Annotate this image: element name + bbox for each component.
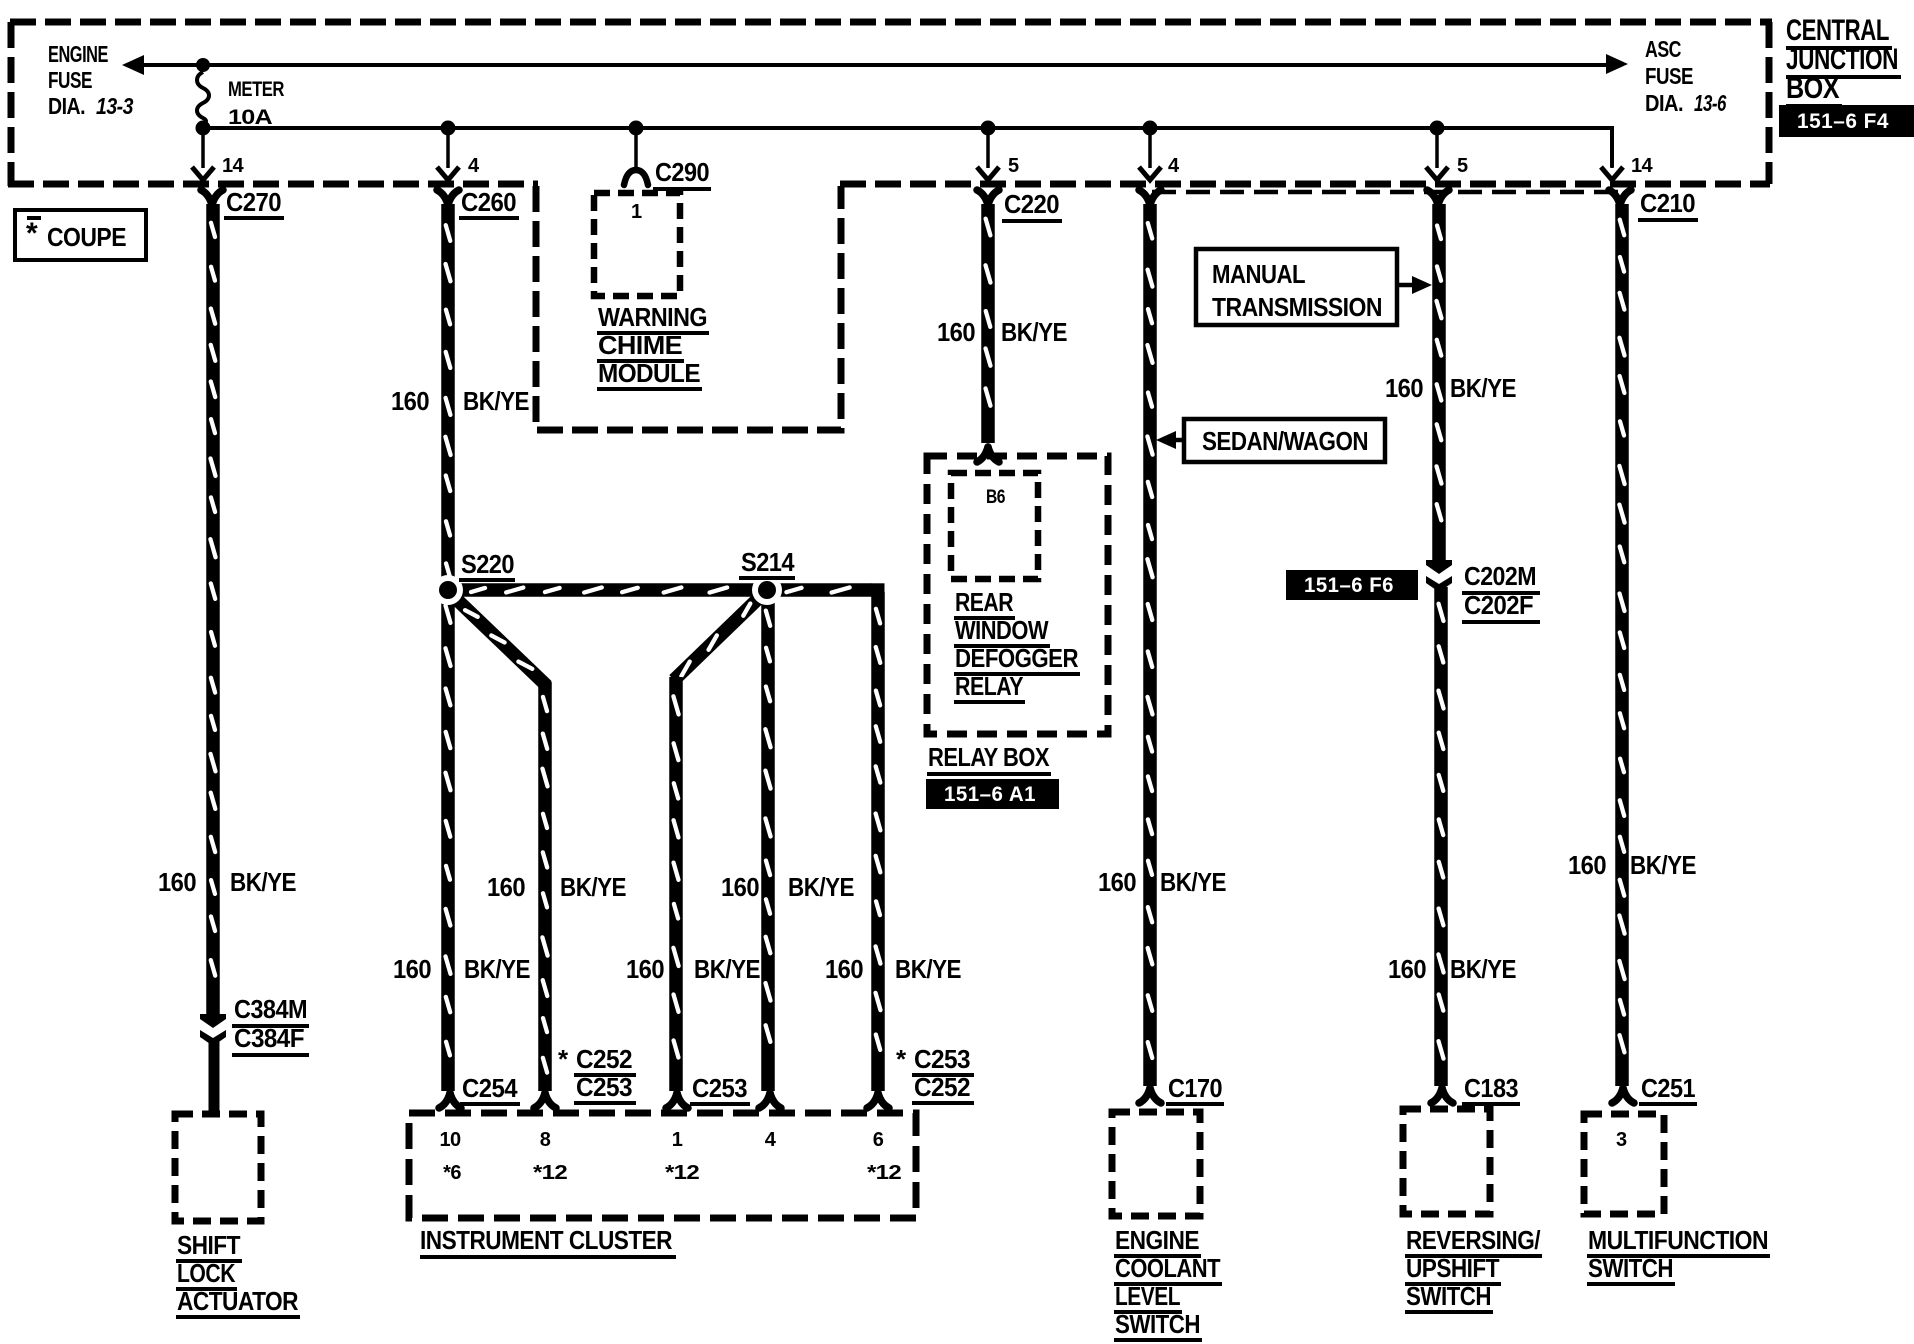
svg-text:FUSE: FUSE [48,67,92,93]
svg-text:SHIFT: SHIFT [177,1230,241,1260]
svg-text:SWITCH: SWITCH [1115,1309,1200,1339]
svg-text:160: 160 [1385,373,1423,403]
svg-text:*: * [558,1044,569,1074]
svg-text:C202F: C202F [1464,590,1533,620]
svg-text:DIA.: DIA. [1645,90,1683,116]
svg-text:10: 10 [439,1129,461,1151]
svg-text:COOLANT: COOLANT [1115,1253,1221,1283]
svg-text:C183: C183 [1464,1073,1518,1103]
svg-text:SWITCH: SWITCH [1406,1281,1491,1311]
svg-text:C253: C253 [692,1073,747,1103]
svg-text:160: 160 [393,954,431,984]
svg-text:C252: C252 [914,1072,970,1102]
svg-text:BK/YE: BK/YE [1001,317,1067,347]
svg-text:C384M: C384M [234,994,307,1024]
svg-text:5: 5 [1008,155,1019,177]
svg-text:ASC: ASC [1645,36,1681,62]
svg-text:BK/YE: BK/YE [464,954,530,984]
svg-text:1: 1 [672,1129,683,1151]
svg-text:1: 1 [631,201,642,223]
svg-text:6: 6 [873,1129,884,1151]
svg-text:5: 5 [1457,155,1468,177]
svg-text:160: 160 [721,872,759,902]
svg-text:RELAY: RELAY [955,671,1023,701]
svg-text:BK/YE: BK/YE [1450,373,1516,403]
svg-text:4: 4 [468,155,480,177]
svg-text:C170: C170 [1168,1073,1222,1103]
svg-text:WARNING: WARNING [598,302,707,332]
svg-text:DIA.: DIA. [48,93,85,119]
svg-text:METER: METER [228,78,284,101]
svg-text:BK/YE: BK/YE [230,867,296,897]
svg-text:160: 160 [1388,954,1426,984]
svg-text:8: 8 [540,1129,551,1151]
svg-text:C252: C252 [576,1044,632,1074]
svg-text:C254: C254 [462,1073,518,1103]
svg-text:C290: C290 [655,157,709,187]
svg-text:C270: C270 [226,187,281,217]
svg-text:160: 160 [391,386,429,416]
svg-text:S214: S214 [741,547,795,577]
svg-text:C251: C251 [1641,1073,1695,1103]
svg-text:WINDOW: WINDOW [955,615,1049,645]
svg-text:13-3: 13-3 [96,93,134,119]
svg-text:LEVEL: LEVEL [1115,1281,1181,1311]
svg-text:151–6 F6: 151–6 F6 [1304,574,1394,597]
svg-text:BK/YE: BK/YE [1160,867,1226,897]
svg-text:14: 14 [222,155,245,177]
svg-text:160: 160 [1098,867,1136,897]
svg-text:MODULE: MODULE [598,358,700,388]
svg-text:C384F: C384F [234,1023,304,1053]
svg-text:160: 160 [158,867,196,897]
svg-text:BK/YE: BK/YE [694,954,760,984]
svg-text:UPSHIFT: UPSHIFT [1406,1253,1500,1283]
svg-text:C260: C260 [461,187,516,217]
svg-text:DEFOGGER: DEFOGGER [955,643,1079,673]
svg-text:REAR: REAR [955,587,1014,617]
svg-text:SEDAN/WAGON: SEDAN/WAGON [1202,426,1368,456]
svg-text:14: 14 [1631,155,1654,177]
svg-text:*12: *12 [867,1162,902,1184]
svg-text:4: 4 [765,1129,777,1151]
svg-text:160: 160 [937,317,975,347]
svg-text:C210: C210 [1640,188,1695,218]
svg-text:INSTRUMENT CLUSTER: INSTRUMENT CLUSTER [420,1225,673,1255]
svg-text:BK/YE: BK/YE [788,872,854,902]
svg-text:160: 160 [626,954,664,984]
svg-text:3: 3 [1616,1129,1627,1151]
svg-text:*: * [26,217,38,250]
svg-text:*6: *6 [443,1162,461,1184]
svg-text:*12: *12 [533,1162,568,1184]
svg-text:B6: B6 [986,487,1005,508]
svg-text:160: 160 [487,872,525,902]
svg-text:MULTIFUNCTION: MULTIFUNCTION [1588,1225,1768,1255]
svg-text:160: 160 [825,954,863,984]
svg-text:10A: 10A [228,106,273,129]
svg-text:MANUAL: MANUAL [1212,259,1306,289]
svg-text:*: * [896,1044,907,1074]
svg-text:BOX: BOX [1786,72,1839,105]
svg-text:C253: C253 [914,1044,970,1074]
svg-text:C253: C253 [576,1072,632,1102]
svg-text:COUPE: COUPE [47,222,126,252]
svg-text:RELAY BOX: RELAY BOX [928,742,1050,772]
svg-text:13-6: 13-6 [1694,90,1727,116]
svg-text:BK/YE: BK/YE [1630,850,1696,880]
svg-text:LOCK: LOCK [177,1258,236,1288]
svg-text:SWITCH: SWITCH [1588,1253,1673,1283]
svg-text:BK/YE: BK/YE [1450,954,1516,984]
svg-text:160: 160 [1568,850,1606,880]
svg-text:151–6 F4: 151–6 F4 [1797,110,1889,133]
svg-text:BK/YE: BK/YE [895,954,961,984]
svg-text:FUSE: FUSE [1645,63,1693,89]
svg-text:S220: S220 [461,549,514,579]
svg-text:ENGINE: ENGINE [48,41,108,67]
svg-text:ACTUATOR: ACTUATOR [177,1286,299,1316]
svg-text:CHIME: CHIME [598,330,682,360]
svg-text:BK/YE: BK/YE [560,872,626,902]
svg-text:*12: *12 [665,1162,700,1184]
svg-text:C220: C220 [1004,189,1059,219]
svg-text:C202M: C202M [1464,561,1536,591]
svg-text:BK/YE: BK/YE [463,386,529,416]
svg-text:TRANSMISSION: TRANSMISSION [1212,292,1382,322]
svg-text:151–6 A1: 151–6 A1 [944,783,1036,806]
svg-text:4: 4 [1168,155,1180,177]
svg-text:REVERSING/: REVERSING/ [1406,1225,1540,1255]
svg-text:ENGINE: ENGINE [1115,1225,1199,1255]
